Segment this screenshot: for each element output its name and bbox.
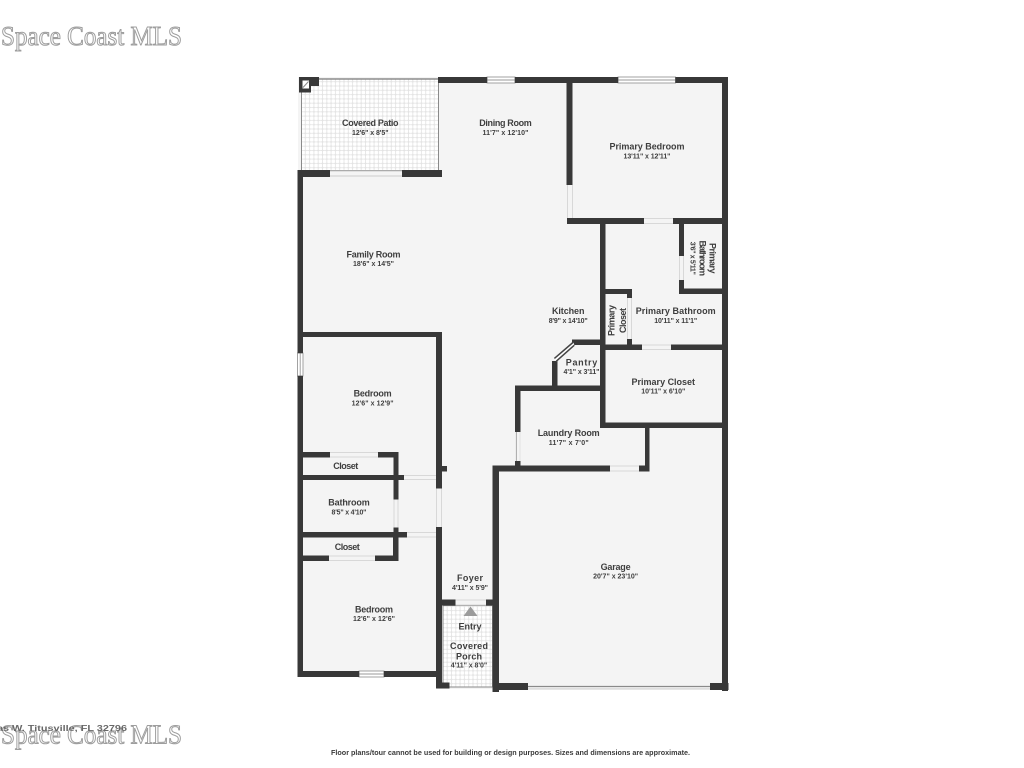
svg-text:Covered: Covered: [450, 641, 488, 651]
svg-text:10'11" x 6'10": 10'11" x 6'10": [641, 389, 685, 396]
svg-text:Primary: Primary: [708, 243, 718, 274]
svg-text:Primary Closet: Primary Closet: [632, 377, 696, 387]
svg-text:Family Room: Family Room: [347, 249, 401, 259]
svg-text:Closet: Closet: [618, 308, 628, 333]
svg-text:Covered Patio: Covered Patio: [342, 118, 399, 128]
svg-text:13'11" x 12'11": 13'11" x 12'11": [624, 154, 671, 161]
svg-text:Laundry Room: Laundry Room: [538, 428, 600, 438]
svg-text:Space Coast MLS: Space Coast MLS: [1, 21, 182, 51]
svg-text:4'11" x 8'0": 4'11" x 8'0": [451, 663, 488, 670]
svg-text:Primary Bathroom: Primary Bathroom: [636, 306, 716, 316]
svg-text:Kitchen: Kitchen: [552, 306, 585, 316]
svg-text:Dining Room: Dining Room: [479, 118, 532, 128]
svg-text:Garage: Garage: [601, 562, 631, 572]
svg-text:Bathroom: Bathroom: [328, 498, 370, 508]
svg-text:Bedroom: Bedroom: [355, 604, 393, 614]
svg-text:Floor plans/tour cannot be use: Floor plans/tour cannot be used for buil…: [331, 748, 690, 757]
svg-text:Pantry: Pantry: [566, 357, 598, 367]
svg-text:3'6" x 5'11": 3'6" x 5'11": [689, 242, 696, 275]
svg-text:Bathroom: Bathroom: [698, 241, 708, 277]
svg-text:8'9" x 14'10": 8'9" x 14'10": [549, 318, 588, 325]
svg-text:Closet: Closet: [333, 461, 358, 471]
svg-text:12'6" x 12'9": 12'6" x 12'9": [352, 401, 394, 408]
svg-text:Closet: Closet: [335, 542, 360, 552]
svg-text:Entry: Entry: [459, 621, 482, 631]
svg-text:Porch: Porch: [456, 652, 482, 662]
svg-text:11'7" x 12'10": 11'7" x 12'10": [483, 130, 529, 137]
svg-text:12'6" x 8'5": 12'6" x 8'5": [352, 130, 389, 137]
svg-text:11'7" x 7'0": 11'7" x 7'0": [549, 440, 589, 447]
svg-text:20'7" x 23'10": 20'7" x 23'10": [593, 574, 638, 581]
svg-text:as W. Titusville, FL 32796: as W. Titusville, FL 32796: [0, 723, 127, 733]
svg-text:4'11" x 5'9": 4'11" x 5'9": [452, 585, 488, 592]
svg-text:18'6" x 14'5": 18'6" x 14'5": [353, 261, 394, 268]
svg-text:Foyer: Foyer: [457, 573, 483, 583]
svg-text:Primary: Primary: [607, 305, 617, 336]
svg-text:Primary Bedroom: Primary Bedroom: [610, 142, 685, 152]
svg-text:12'6" x 12'6": 12'6" x 12'6": [353, 616, 395, 623]
svg-text:10'11" x 11'1": 10'11" x 11'1": [654, 318, 697, 325]
svg-text:4'1" x 3'11": 4'1" x 3'11": [564, 369, 600, 376]
svg-text:Bedroom: Bedroom: [354, 389, 392, 399]
svg-text:8'5" x 4'10": 8'5" x 4'10": [332, 509, 367, 516]
